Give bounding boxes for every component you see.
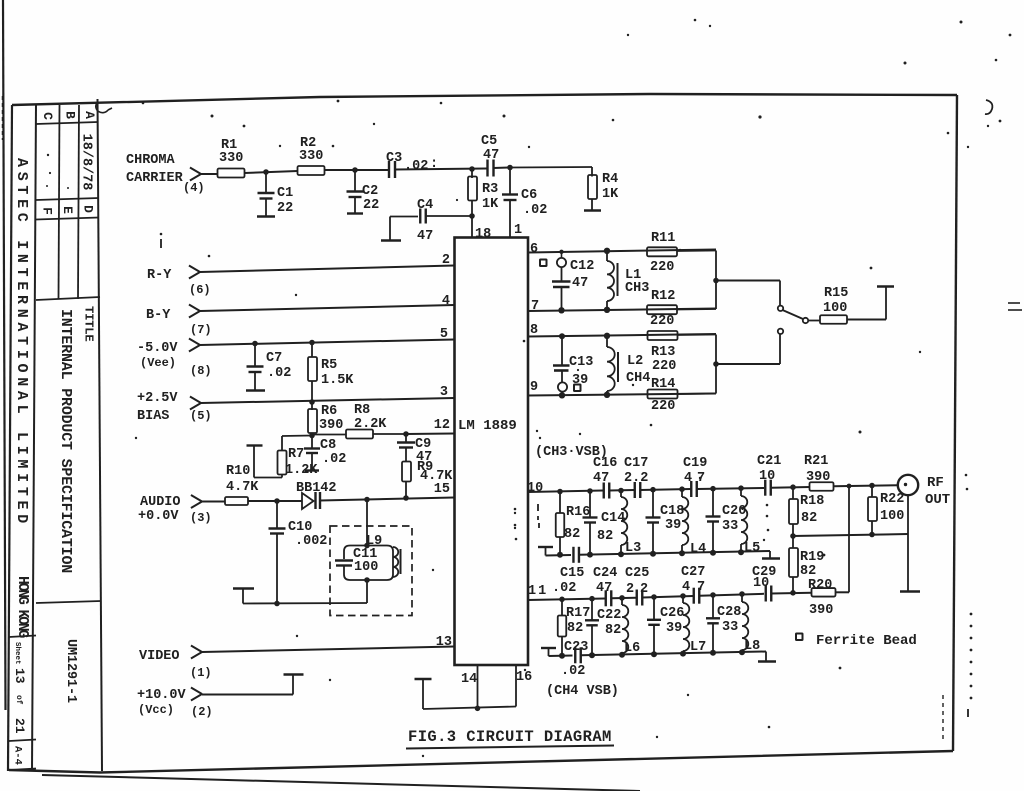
svg-text:CH4: CH4 — [626, 371, 650, 386]
svg-text:13: 13 — [436, 635, 452, 650]
svg-text:C19: C19 — [683, 456, 707, 471]
svg-text:(6): (6) — [189, 283, 211, 297]
svg-text:LM 1889: LM 1889 — [458, 418, 517, 434]
svg-text:R5: R5 — [321, 358, 337, 373]
svg-text:10: 10 — [527, 481, 543, 496]
svg-text:100: 100 — [354, 560, 378, 575]
svg-text:47: 47 — [483, 148, 499, 163]
svg-text:INTERNAL PRODUCT SPECIFICATION: INTERNAL PRODUCT SPECIFICATION — [57, 309, 74, 573]
svg-text:B: B — [63, 111, 78, 119]
svg-text:FIG.3 CIRCUIT DIAGRAM: FIG.3 CIRCUIT DIAGRAM — [408, 728, 612, 746]
svg-text:VIDEO: VIDEO — [139, 649, 180, 664]
svg-text:9: 9 — [530, 380, 538, 395]
svg-text:(CH4 VSB): (CH4 VSB) — [546, 684, 619, 699]
svg-text:1K: 1K — [482, 197, 499, 212]
svg-text:C1: C1 — [277, 186, 293, 201]
svg-text:82: 82 — [800, 564, 816, 579]
svg-text:R22: R22 — [880, 492, 904, 507]
svg-text:47: 47 — [572, 276, 588, 291]
svg-text:1K: 1K — [602, 187, 619, 202]
svg-text:C23: C23 — [564, 640, 588, 655]
svg-text:39: 39 — [666, 621, 682, 636]
svg-text:15: 15 — [434, 482, 450, 497]
svg-text:82: 82 — [597, 529, 613, 544]
svg-text:R4: R4 — [602, 172, 618, 187]
svg-text:ASTEC INTERNATIONAL LIMITED: ASTEC INTERNATIONAL LIMITED — [13, 158, 30, 528]
svg-text:C24: C24 — [593, 566, 617, 581]
svg-text:2: 2 — [442, 253, 450, 268]
svg-text:R11: R11 — [651, 231, 675, 246]
svg-text:2.2: 2.2 — [624, 471, 648, 486]
svg-text:C17: C17 — [624, 456, 648, 471]
svg-text:390: 390 — [806, 470, 830, 485]
svg-text:C12: C12 — [570, 259, 594, 274]
svg-text:C7: C7 — [266, 351, 282, 366]
svg-text:C27: C27 — [681, 565, 705, 580]
svg-text:47: 47 — [593, 471, 609, 486]
svg-text:.02: .02 — [404, 159, 428, 174]
svg-text:C18: C18 — [660, 504, 684, 519]
svg-text:CHROMA: CHROMA — [126, 153, 176, 168]
svg-text:.02: .02 — [552, 581, 576, 596]
svg-text:4: 4 — [442, 294, 450, 309]
svg-text:330: 330 — [219, 151, 243, 166]
svg-text:B-Y: B-Y — [146, 308, 171, 323]
svg-text:11: 11 — [528, 584, 548, 599]
svg-text:A: A — [82, 111, 97, 119]
svg-text:47: 47 — [596, 581, 612, 596]
svg-text:220: 220 — [650, 260, 674, 275]
svg-text:R12: R12 — [651, 289, 675, 304]
svg-text:(8): (8) — [190, 364, 212, 378]
svg-text:.02: .02 — [267, 366, 291, 381]
svg-text:6: 6 — [530, 242, 538, 257]
svg-text:C25: C25 — [625, 566, 649, 581]
svg-text:E: E — [60, 206, 75, 214]
svg-text:100: 100 — [823, 301, 847, 316]
svg-text:R7: R7 — [288, 447, 304, 462]
svg-text:(Vcc): (Vcc) — [138, 703, 174, 717]
svg-text:BIAS: BIAS — [137, 409, 169, 424]
svg-text:.02: .02 — [561, 664, 585, 679]
svg-text:22: 22 — [363, 198, 379, 213]
svg-text:47: 47 — [417, 229, 433, 244]
svg-text:.02: .02 — [523, 203, 547, 218]
svg-text:Sheet: Sheet — [13, 642, 21, 665]
svg-text:F: F — [40, 207, 55, 215]
svg-text:12: 12 — [434, 418, 450, 433]
svg-text:R15: R15 — [824, 286, 848, 301]
svg-text:(1): (1) — [190, 666, 212, 680]
svg-text:C2: C2 — [362, 184, 378, 199]
svg-text:R17: R17 — [566, 606, 590, 621]
svg-text:1.5K: 1.5K — [321, 373, 354, 388]
svg-text:(5): (5) — [190, 409, 212, 423]
svg-text:390: 390 — [809, 603, 833, 618]
svg-text:+0.0V: +0.0V — [138, 509, 179, 524]
svg-text:10: 10 — [753, 576, 769, 591]
svg-text:R20: R20 — [808, 578, 832, 593]
svg-text:C21: C21 — [757, 454, 781, 469]
svg-text:.02: .02 — [322, 452, 346, 467]
svg-text:7: 7 — [697, 580, 705, 595]
svg-text:C3: C3 — [386, 151, 402, 166]
svg-text:R21: R21 — [804, 454, 828, 469]
svg-text:3: 3 — [440, 385, 448, 400]
svg-text:C15: C15 — [560, 566, 584, 581]
svg-text:(7): (7) — [190, 323, 212, 337]
svg-text:C5: C5 — [481, 134, 497, 149]
svg-text:220: 220 — [651, 399, 675, 414]
svg-text:33: 33 — [722, 519, 738, 534]
svg-text:RF: RF — [927, 475, 944, 491]
svg-text:220: 220 — [652, 359, 676, 374]
svg-text:C: C — [40, 112, 55, 120]
svg-text:(4): (4) — [183, 181, 205, 195]
svg-text:2: 2 — [626, 582, 634, 597]
svg-text:C16: C16 — [593, 456, 617, 471]
svg-text:C26: C26 — [660, 606, 684, 621]
svg-text:OUT: OUT — [925, 492, 950, 508]
svg-text:C13: C13 — [569, 355, 593, 370]
svg-text:C10: C10 — [288, 520, 312, 535]
svg-text:C6: C6 — [521, 188, 537, 203]
svg-text:100: 100 — [880, 509, 904, 524]
svg-text:C20: C20 — [722, 504, 746, 519]
svg-text:CH3: CH3 — [625, 281, 649, 296]
svg-text:AUDIO: AUDIO — [140, 495, 181, 510]
svg-text:(Vee): (Vee) — [140, 356, 176, 370]
svg-text:1: 1 — [514, 223, 522, 238]
svg-text:82: 82 — [567, 621, 583, 636]
svg-text:TITLE: TITLE — [82, 306, 96, 341]
svg-text:C14: C14 — [601, 511, 625, 526]
svg-text:82: 82 — [605, 623, 621, 638]
svg-text:4.7K: 4.7K — [226, 480, 259, 495]
svg-text:16: 16 — [516, 670, 532, 685]
svg-text:4: 4 — [682, 580, 690, 595]
svg-text:220: 220 — [650, 314, 674, 329]
svg-text:2.2K: 2.2K — [354, 417, 387, 432]
svg-text:L2: L2 — [627, 354, 643, 369]
svg-text:R3: R3 — [482, 182, 498, 197]
svg-text:R18: R18 — [800, 494, 824, 509]
svg-text:33: 33 — [722, 620, 738, 635]
svg-text:10: 10 — [759, 469, 775, 484]
svg-text:14: 14 — [461, 672, 477, 687]
svg-text:L5: L5 — [744, 541, 760, 556]
svg-text:(3): (3) — [190, 511, 212, 525]
svg-text:R13: R13 — [651, 345, 675, 360]
svg-text:(2): (2) — [191, 705, 213, 719]
svg-text:82: 82 — [564, 527, 580, 542]
svg-text:-5.0V: -5.0V — [137, 341, 178, 356]
svg-text:R8: R8 — [354, 403, 370, 418]
svg-text:C8: C8 — [320, 438, 336, 453]
svg-text:D: D — [81, 205, 96, 213]
svg-text:5: 5 — [440, 327, 448, 342]
svg-text:2: 2 — [640, 582, 648, 597]
svg-text:of: of — [14, 695, 23, 705]
svg-text:4: 4 — [684, 471, 692, 486]
svg-text:+2.5V: +2.5V — [137, 391, 178, 406]
svg-text:+10.0V: +10.0V — [137, 688, 187, 703]
svg-text:330: 330 — [299, 149, 323, 164]
svg-text:R19: R19 — [800, 550, 824, 565]
svg-text:UM1291-1: UM1291-1 — [63, 639, 78, 703]
svg-text:CARRIER: CARRIER — [126, 171, 184, 186]
svg-text:22: 22 — [277, 201, 293, 216]
svg-text:R14: R14 — [651, 377, 675, 392]
svg-text:390: 390 — [319, 418, 343, 433]
svg-text:13: 13 — [12, 668, 27, 684]
svg-text:C22: C22 — [597, 608, 621, 623]
svg-text:HONG KONG: HONG KONG — [14, 576, 30, 638]
svg-text:21: 21 — [12, 718, 27, 734]
svg-text:82: 82 — [801, 511, 817, 526]
svg-text:A-4: A-4 — [12, 746, 24, 765]
svg-text:C28: C28 — [717, 605, 741, 620]
svg-text:R6: R6 — [321, 404, 337, 419]
svg-text:39: 39 — [665, 518, 681, 533]
svg-text:.002: .002 — [295, 534, 327, 549]
svg-text:C4: C4 — [417, 198, 433, 213]
svg-text:R10: R10 — [226, 464, 250, 479]
svg-text:L4: L4 — [690, 542, 706, 557]
svg-text:18/8/78: 18/8/78 — [79, 134, 94, 191]
svg-text:R-Y: R-Y — [147, 268, 172, 283]
svg-text:Ferrite Bead: Ferrite Bead — [816, 633, 917, 649]
